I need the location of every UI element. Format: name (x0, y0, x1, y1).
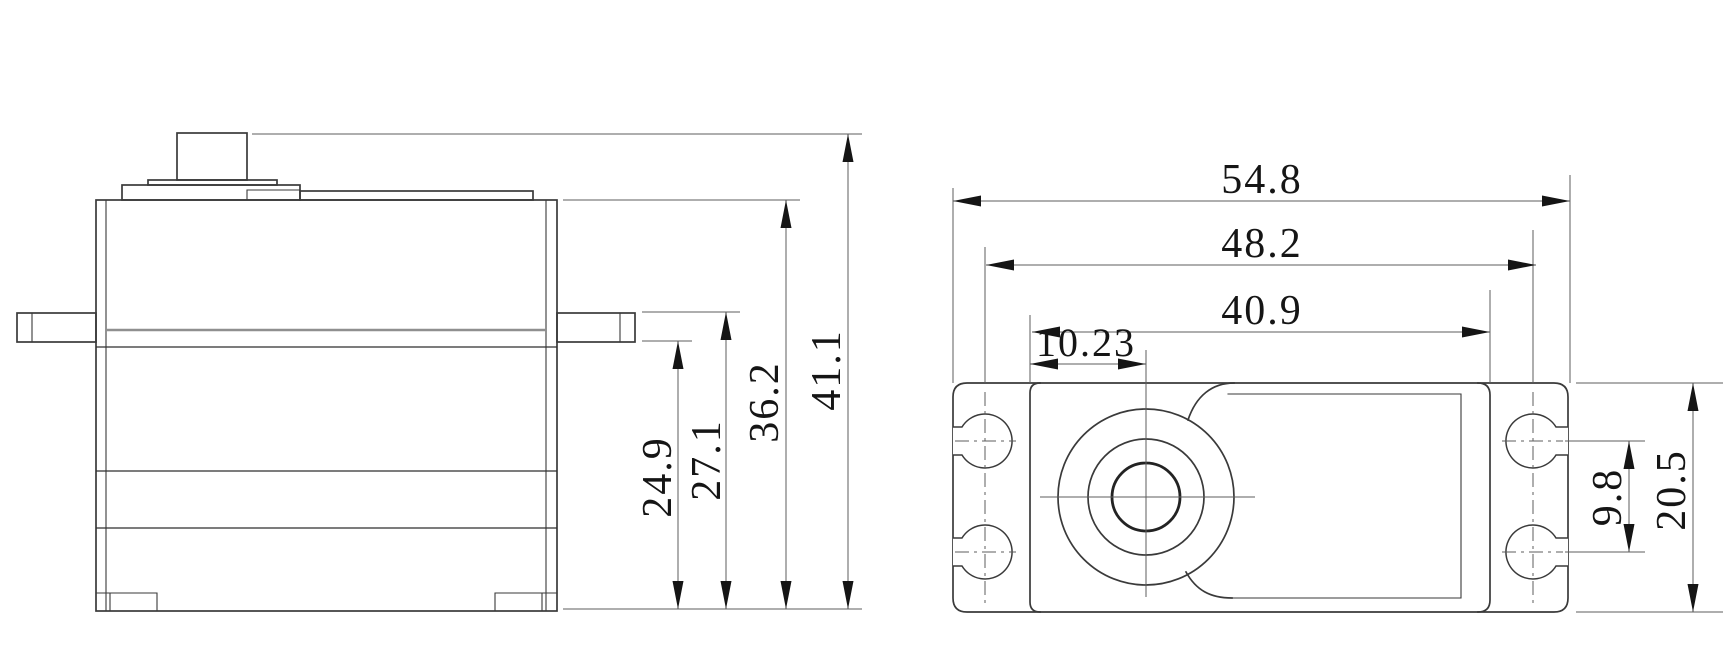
case-label-rect (1228, 394, 1461, 598)
case-right-end (1478, 383, 1490, 612)
top-cap-step (247, 190, 300, 200)
top-view: 54.8 48.2 40.9 10.23 9.8 20.5 (953, 157, 1723, 612)
hole-centerlines-vertical (985, 392, 1533, 604)
dim-text-overall-height: 41.1 (804, 329, 850, 411)
boss-blend-top (1188, 383, 1234, 420)
shaft-outline (177, 133, 247, 180)
dim-text-tab-top-to-base: 27.1 (684, 419, 730, 501)
dim-text-overall-length: 54.8 (1221, 157, 1303, 203)
mount-tab-right (557, 313, 635, 342)
boss-blend-bottom (1186, 572, 1232, 598)
dim-text-mount-hole-span: 48.2 (1221, 221, 1303, 267)
top-thin-plate (300, 191, 533, 200)
cad-drawing: 24.9 27.1 36.2 41.1 (0, 0, 1734, 670)
dim-text-case-length: 40.9 (1221, 288, 1303, 334)
top-cap-plate (122, 185, 300, 200)
dim-text-shaft-center-offset: 10.23 (1036, 320, 1136, 365)
foot-left (96, 593, 157, 611)
case-left-end (1030, 383, 1040, 612)
dim-text-tab-bottom-to-base: 24.9 (635, 436, 681, 518)
top-view-dimension-lines (953, 196, 1699, 613)
foot-right (495, 593, 557, 611)
mount-tab-left (17, 313, 96, 342)
side-view: 24.9 27.1 36.2 41.1 (17, 133, 862, 611)
dim-text-hole-pitch: 9.8 (1585, 468, 1631, 527)
drawing-sheet: 24.9 27.1 36.2 41.1 (0, 0, 1734, 670)
dim-text-case-top-to-base: 36.2 (742, 361, 788, 443)
dim-text-overall-width: 20.5 (1649, 449, 1695, 531)
body-outline (96, 200, 557, 611)
